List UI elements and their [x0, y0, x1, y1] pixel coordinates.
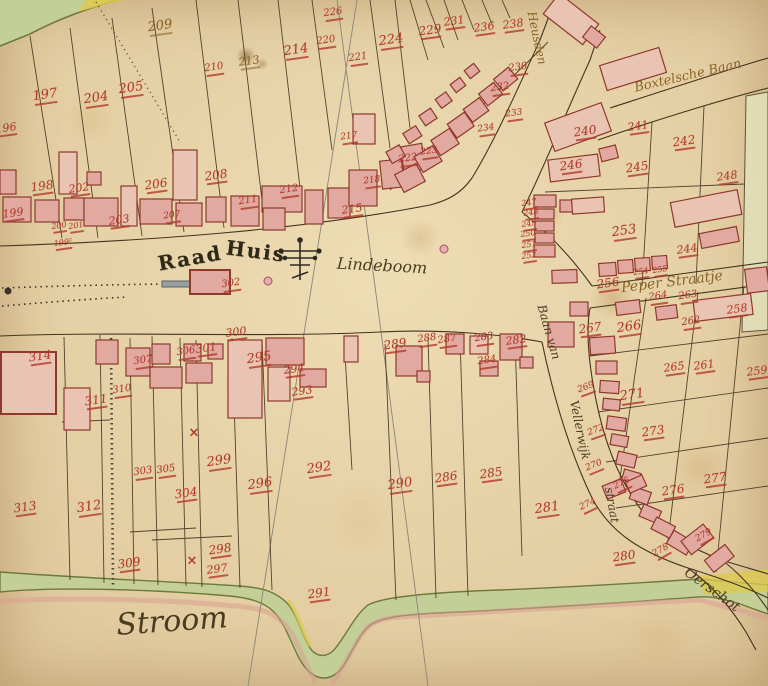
parcel-number: 209: [147, 18, 173, 34]
cadastral-map: 1961972042052092102132142202212262242292…: [0, 0, 768, 686]
parcel-number: 280: [612, 548, 636, 563]
parcel-number: 242: [672, 133, 696, 148]
parcel-number: 254: [633, 267, 649, 277]
parcel-number: 218: [363, 175, 381, 186]
parcel-number: 283: [474, 332, 494, 345]
parcel-number: 203: [108, 213, 130, 227]
parcel-number: 205: [118, 80, 144, 96]
parcel-number: 222: [398, 153, 418, 166]
parcel-number: 200: [51, 221, 67, 231]
oerschot-label: Oerschot: [682, 565, 742, 614]
parcel-number: 312: [76, 499, 102, 515]
parcel-number: 272: [586, 424, 605, 438]
lindeboom-label: Lindeboom: [336, 256, 427, 277]
parcel-number: 211: [238, 195, 258, 208]
parcel-number: 249: [521, 219, 537, 229]
parcel-number: 230: [508, 62, 528, 75]
parcel-number: 274: [578, 497, 597, 512]
parcel-number: 263: [678, 290, 698, 303]
parcel-number: 234: [477, 123, 495, 134]
baan-van-label: Baan van: [535, 303, 562, 360]
parcel-number: 210: [204, 62, 224, 75]
parcel-number: 267: [578, 320, 602, 335]
parcel-number: 252: [521, 251, 537, 261]
parcel-number: 236: [473, 20, 495, 34]
parcel-number: 197: [32, 87, 58, 103]
parcel-number: 266: [616, 319, 642, 335]
parcel-number: 281: [534, 500, 560, 516]
parcel-number: 208: [204, 167, 228, 182]
parcel-number: 302: [221, 278, 241, 291]
heusden-street-label: Heusden: [526, 10, 549, 65]
raad-huis-label-2: Huis: [225, 237, 287, 264]
well-dot: [264, 277, 273, 286]
parcel-number: 220: [316, 35, 336, 48]
parcel-number: 238: [502, 17, 524, 31]
parcel-number: 202: [68, 181, 90, 195]
parcel-number: 291: [307, 585, 331, 600]
parcel-number: 248: [523, 208, 539, 218]
parcel-number: 248: [716, 169, 738, 183]
parcel-number: 207: [163, 210, 181, 221]
parcel-number: 221: [348, 52, 368, 65]
parcel-number: 240: [573, 123, 597, 138]
parcel-number: 294: [283, 362, 305, 376]
parcel-number: 307: [133, 355, 153, 368]
parcel-number: 289: [383, 336, 407, 351]
parcel-number: 269: [576, 381, 595, 395]
parcel-number: 286: [434, 469, 458, 484]
parcel-number: 277: [703, 470, 727, 485]
parcel-number: 229: [418, 22, 442, 37]
parcel-number: 250: [520, 229, 536, 239]
parcel-number: 290: [387, 476, 413, 492]
parcel-number: 278: [651, 543, 670, 559]
parcel-number: 295: [246, 350, 272, 366]
parcel-number: 314: [28, 348, 52, 363]
parcel-number: 204: [83, 90, 109, 106]
parcel-number: 296: [247, 476, 273, 492]
raad-huis-label-1: Raad: [156, 243, 223, 274]
parcel-number: 259: [746, 364, 768, 378]
parcel-number: 299: [206, 453, 232, 469]
parcel-number: 199: [2, 206, 24, 220]
parcel-number: 279: [694, 528, 713, 544]
parcel-number: 241: [627, 119, 649, 133]
parcel-number: 305: [156, 464, 176, 477]
map-labels-layer: 1961972042052092102132142202212262242292…: [0, 0, 768, 686]
boxtelsche-baan-label: Boxtelsche Baan: [633, 57, 742, 94]
parcel-number: 217: [340, 131, 358, 142]
parcel-number: 265: [663, 360, 685, 374]
parcel-number: 232: [490, 82, 510, 95]
parcel-number: 224: [378, 32, 404, 48]
well-dot: [440, 245, 449, 254]
parcel-number: 258: [726, 302, 748, 316]
parcel-number: 293: [291, 384, 313, 398]
parcel-number: 284: [477, 355, 497, 368]
parcel-number: 226: [323, 7, 343, 20]
boundary-cross-mark: ×: [187, 555, 198, 568]
parcel-number: 201: [68, 221, 84, 231]
parcel-number: 282: [505, 333, 527, 347]
parcel-number: 251: [521, 240, 537, 250]
parcel-number: 233: [505, 108, 523, 119]
parcel-number: 213: [238, 54, 260, 68]
parcel-number: 206: [144, 176, 168, 191]
parcel-number: 223: [420, 146, 438, 157]
parcel-number: 199²: [53, 238, 72, 248]
boundary-cross-mark: ×: [189, 427, 200, 440]
parcel-number: 244: [676, 242, 698, 256]
parcel-number: 313: [13, 499, 37, 514]
parcel-number: 231: [443, 14, 465, 28]
parcel-number: 287: [437, 334, 457, 347]
parcel-number: 255: [652, 265, 668, 275]
parcel-number: 196: [0, 121, 17, 135]
parcel-number: 212: [279, 184, 299, 197]
parcel-number: 297: [206, 562, 228, 576]
parcel-number: 215: [341, 202, 363, 216]
parcel-number: 298: [208, 541, 232, 556]
parcel-number: 306: [176, 346, 196, 359]
parcel-number: 245: [625, 159, 649, 174]
parcel-number: 273: [641, 423, 665, 438]
parcel-number: 310: [112, 384, 132, 397]
survey-dot: [5, 288, 12, 295]
parcel-number: 253: [611, 223, 637, 239]
parcel-number: 304: [174, 485, 198, 500]
parcel-number: 309: [117, 555, 141, 570]
parcel-number: 292: [306, 460, 332, 476]
parcel-number: 271: [619, 387, 645, 403]
parcel-number: 311: [84, 392, 108, 407]
parcel-number: 301: [195, 341, 217, 355]
parcel-number: 285: [479, 465, 503, 480]
parcel-number: 288: [417, 333, 437, 346]
parcel-number: 276: [661, 482, 685, 497]
parcel-number: 300: [225, 325, 247, 339]
parcel-number: 261: [693, 358, 715, 372]
parcel-number: 246: [559, 157, 583, 172]
parcel-number: 270: [584, 459, 603, 474]
stroom-label: Stroom: [115, 603, 228, 641]
parcel-number: 214: [283, 42, 309, 58]
parcel-number: 262: [681, 316, 701, 329]
parcel-number: 256: [596, 275, 620, 290]
parcel-number: 303: [133, 466, 153, 479]
parcel-number: 198: [30, 178, 54, 193]
